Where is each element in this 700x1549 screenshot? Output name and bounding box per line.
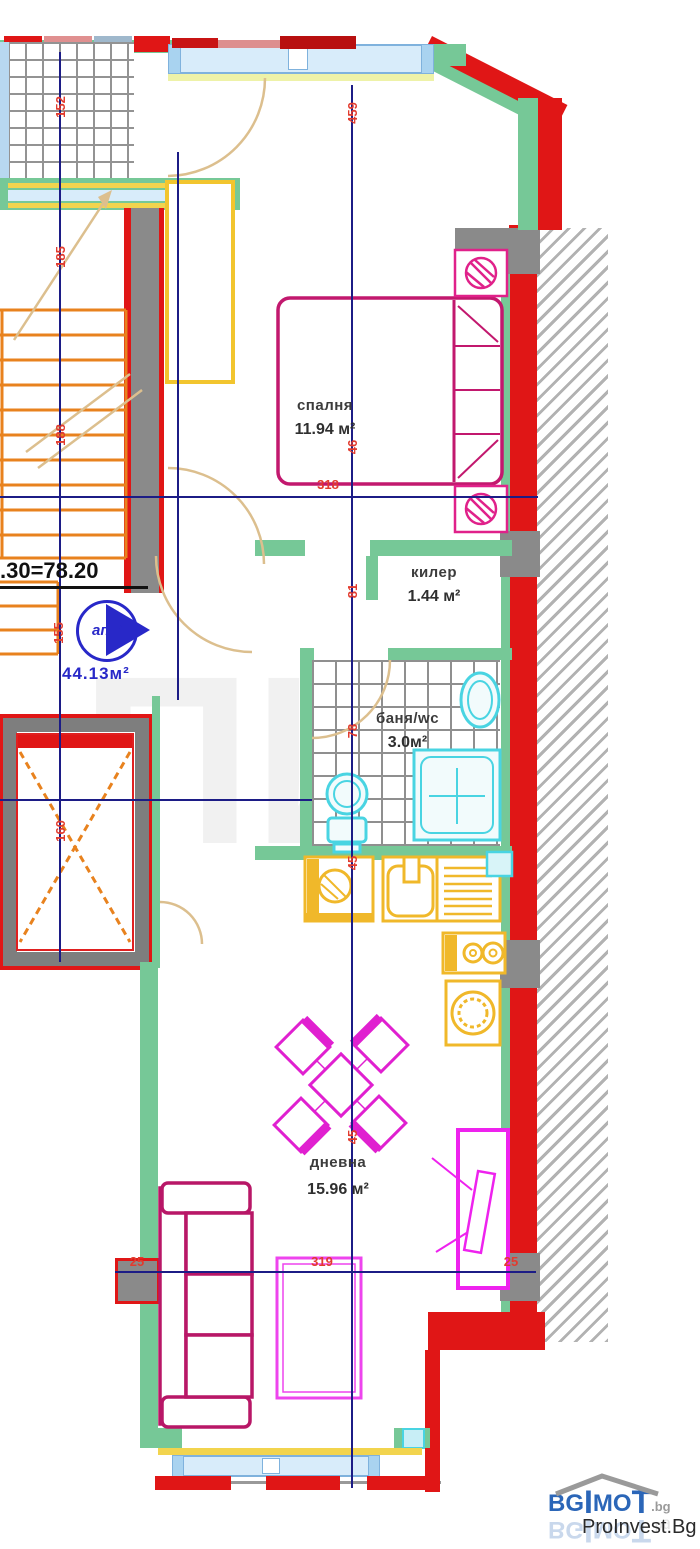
room-label-bathroom: баня/wc <box>350 710 465 727</box>
kitchen-fixtures <box>305 857 505 1045</box>
dimension-label: 160 <box>54 814 68 848</box>
dimension-label: 188 <box>54 418 68 452</box>
dimension-label: 319 <box>304 1255 340 1269</box>
chair <box>274 1098 331 1155</box>
dimension-label: 185 <box>54 240 68 274</box>
floor-plan: ПИ <box>0 0 700 1549</box>
room-area-bedroom: 11.94 м² <box>255 421 395 439</box>
dimension-label: 46 <box>346 434 360 460</box>
chair <box>276 1016 334 1074</box>
dimension-label: 152 <box>54 90 68 124</box>
room-area-storage: 1.44 м² <box>382 588 486 606</box>
dimension-label: 25 <box>124 1255 150 1269</box>
area-formula: .30=78.20 <box>0 558 148 589</box>
door-arc <box>160 902 202 944</box>
door-arc <box>168 468 264 564</box>
elevator-inner-frame <box>17 734 133 950</box>
company-name: ProInvest.Bg <box>582 1516 697 1539</box>
tv-unit <box>432 1130 508 1288</box>
plan-drawing-layer <box>0 0 700 1549</box>
door-arc <box>168 78 265 176</box>
dimension-label: 45 <box>346 850 360 876</box>
dimension-label: 81 <box>346 578 360 604</box>
room-area-bathroom: 3.0м² <box>350 734 465 752</box>
dining-set <box>274 1014 408 1156</box>
dimension-label: 155 <box>52 616 66 650</box>
door-arc <box>156 556 252 652</box>
faucet <box>404 857 419 882</box>
room-label-bedroom: спалня <box>255 397 395 414</box>
unit-total-area: 44.13м² <box>62 664 130 684</box>
wardrobe <box>167 182 233 382</box>
stair-break-lines <box>14 190 142 468</box>
elevator-cross <box>20 752 130 942</box>
dimension-label: 25 <box>498 1255 524 1269</box>
unit-badge: ап.3 <box>76 600 138 662</box>
bed <box>278 298 502 484</box>
dimension-label: 459 <box>346 96 360 130</box>
dimension-label: 318 <box>310 478 346 492</box>
chair <box>350 1014 408 1072</box>
room-label-storage: килер <box>382 564 486 581</box>
sofa <box>160 1183 252 1427</box>
room-area-living: 15.96 м² <box>268 1181 408 1199</box>
logo-roof-icon <box>556 1476 658 1494</box>
coffee-table <box>277 1258 361 1398</box>
boiler <box>487 852 512 876</box>
room-label-living: дневна <box>268 1154 408 1171</box>
dimension-label: 45 <box>346 1124 360 1150</box>
dimension-label: 78 <box>346 718 360 744</box>
